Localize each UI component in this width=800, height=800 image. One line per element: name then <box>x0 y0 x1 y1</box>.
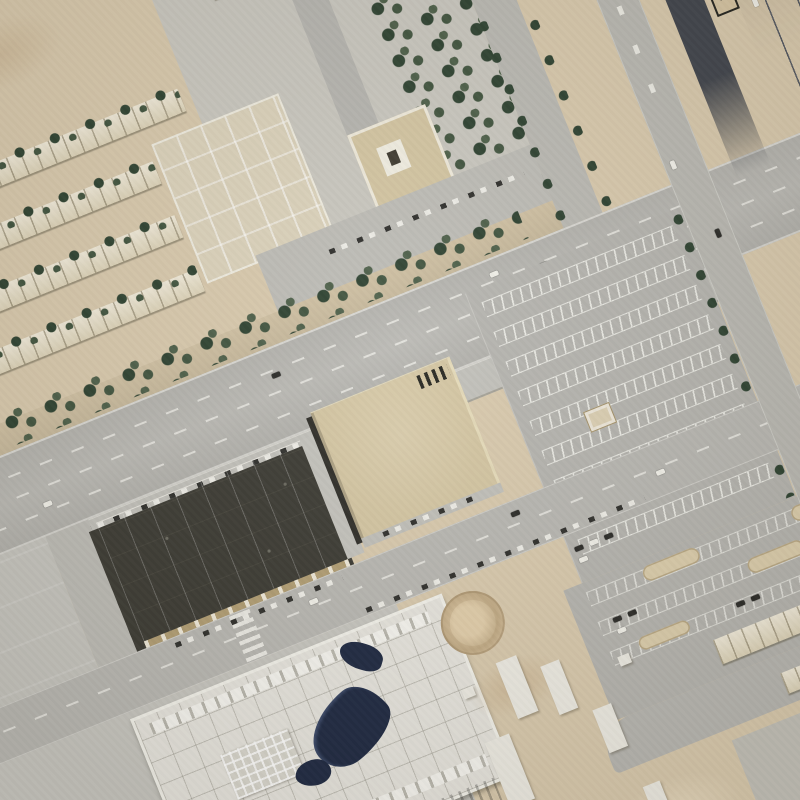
satellite-map-view[interactable] <box>0 0 800 800</box>
rotated-terrain-canvas <box>0 0 800 800</box>
